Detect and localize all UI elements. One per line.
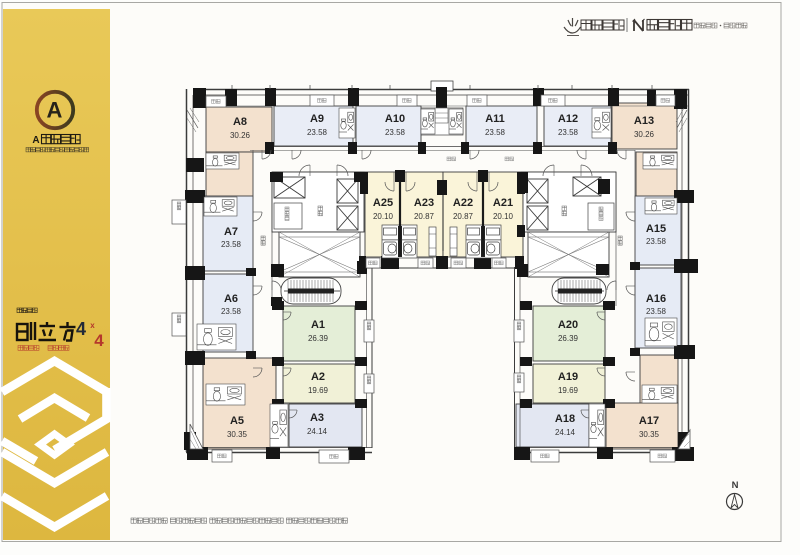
svg-text:A11: A11: [485, 113, 505, 125]
svg-text:23.58: 23.58: [307, 128, 328, 137]
svg-text:23.58: 23.58: [221, 240, 242, 249]
svg-text:30.26: 30.26: [230, 131, 251, 140]
svg-text:N: N: [732, 480, 739, 491]
svg-text:A: A: [32, 135, 39, 146]
svg-text:A18: A18: [555, 413, 575, 425]
svg-text:4: 4: [94, 331, 104, 350]
svg-text:20.10: 20.10: [493, 212, 514, 221]
svg-text:A1: A1: [311, 319, 325, 331]
svg-text:A7: A7: [224, 226, 238, 238]
svg-text:A10: A10: [385, 113, 405, 125]
svg-text:A17: A17: [639, 415, 659, 427]
svg-text:A13: A13: [634, 115, 654, 127]
svg-text:A12: A12: [558, 113, 578, 125]
svg-text:A6: A6: [224, 293, 238, 305]
svg-text:23.58: 23.58: [221, 307, 242, 316]
svg-text:23.58: 23.58: [385, 128, 406, 137]
svg-text:30.35: 30.35: [227, 430, 248, 439]
svg-text:4: 4: [76, 319, 86, 339]
svg-text:26.39: 26.39: [558, 334, 579, 343]
svg-text:20.87: 20.87: [453, 212, 474, 221]
svg-text:A15: A15: [646, 223, 666, 235]
svg-text:A5: A5: [230, 415, 244, 427]
svg-text:A23: A23: [414, 197, 434, 209]
svg-text:A2: A2: [311, 371, 325, 383]
svg-text:23.58: 23.58: [558, 128, 579, 137]
svg-text:A: A: [47, 98, 63, 123]
svg-text:23.58: 23.58: [646, 307, 667, 316]
svg-text:30.26: 30.26: [634, 130, 655, 139]
svg-text:23.58: 23.58: [485, 128, 506, 137]
svg-text:26.39: 26.39: [308, 334, 329, 343]
svg-text:A8: A8: [233, 116, 247, 128]
svg-text:20.10: 20.10: [373, 212, 394, 221]
svg-text:A20: A20: [558, 319, 578, 331]
svg-text:A22: A22: [453, 197, 473, 209]
svg-text:A19: A19: [558, 371, 578, 383]
svg-text:x: x: [90, 321, 95, 330]
svg-text:24.14: 24.14: [307, 427, 328, 436]
svg-text:19.69: 19.69: [558, 386, 579, 395]
svg-text:20.87: 20.87: [414, 212, 435, 221]
svg-text:A16: A16: [646, 293, 666, 305]
svg-text:A21: A21: [493, 197, 513, 209]
svg-text:19.69: 19.69: [308, 386, 329, 395]
svg-text:A25: A25: [373, 197, 393, 209]
svg-text:23.58: 23.58: [646, 237, 667, 246]
svg-text:30.35: 30.35: [639, 430, 660, 439]
svg-text:A9: A9: [310, 113, 324, 125]
svg-text:A3: A3: [310, 412, 324, 424]
svg-text:24.14: 24.14: [555, 428, 576, 437]
